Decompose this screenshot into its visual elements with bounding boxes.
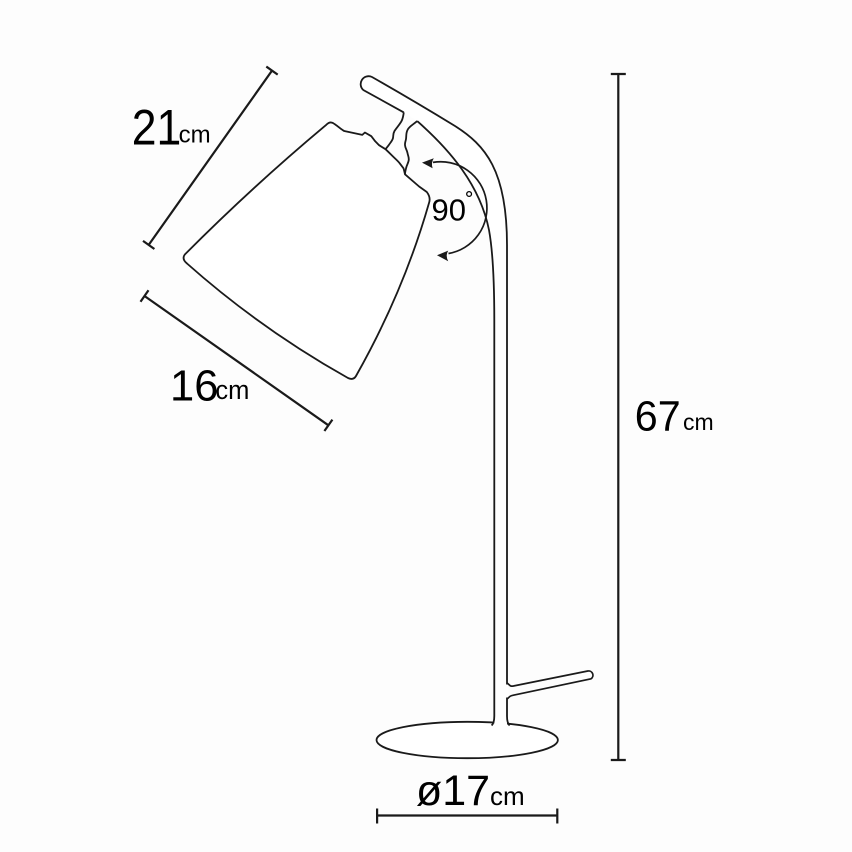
svg-text:ø17: ø17 [416,767,490,815]
svg-text:cm: cm [215,377,249,405]
svg-text:67: 67 [635,392,681,440]
svg-text:16: 16 [170,362,218,410]
svg-text:90: 90 [432,193,466,228]
svg-text:cm: cm [490,781,525,811]
svg-text:cm: cm [179,122,211,149]
svg-text:21: 21 [132,100,181,156]
svg-text:cm: cm [683,409,714,435]
